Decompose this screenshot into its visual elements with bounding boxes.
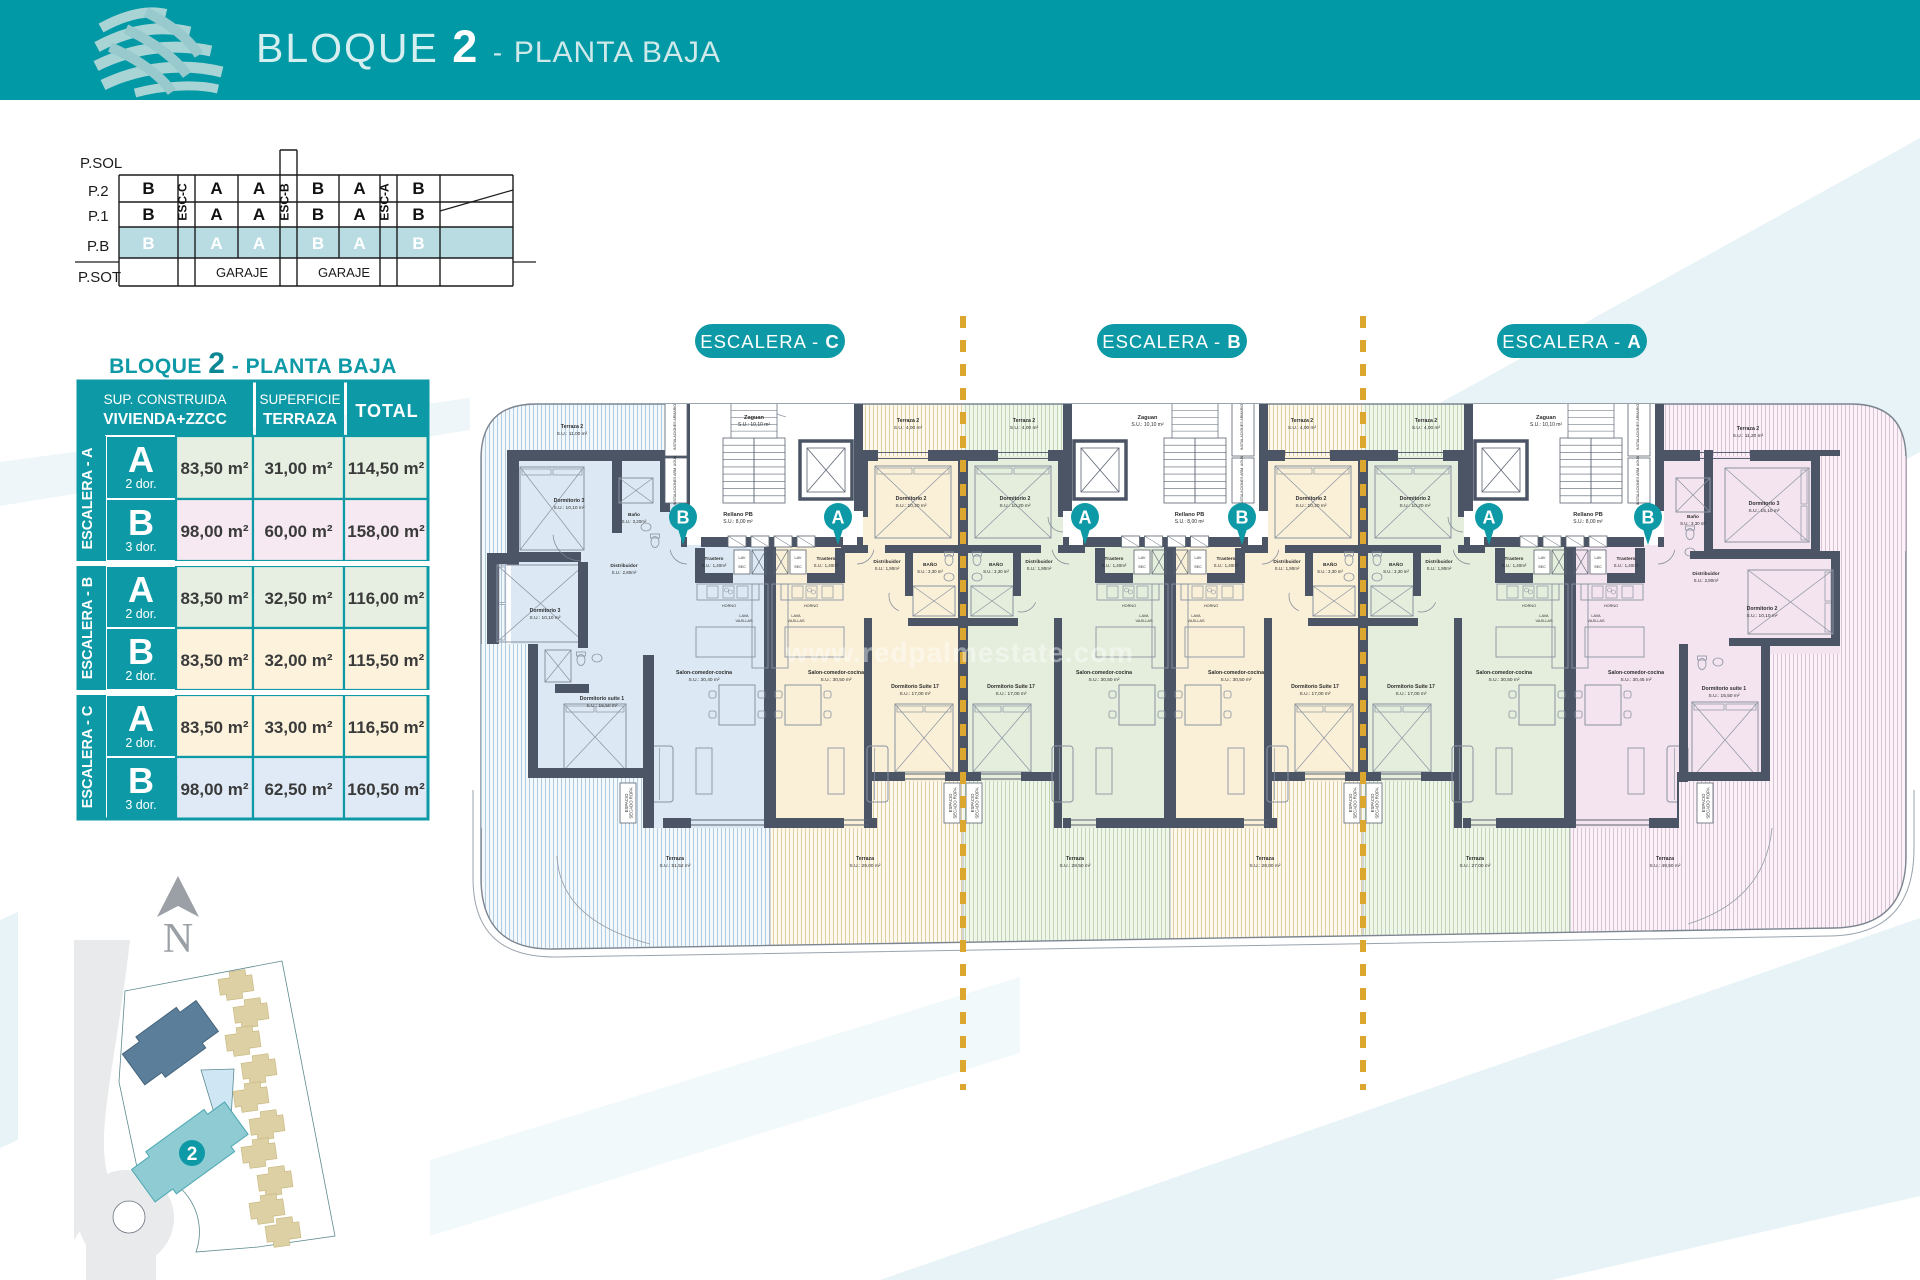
svg-text:S.U.: 3,30 m²: S.U.: 3,30 m² — [1317, 569, 1343, 574]
svg-text:ESCALERA - C: ESCALERA - C — [700, 331, 840, 352]
svg-text:A: A — [353, 179, 365, 198]
svg-text:B: B — [312, 234, 324, 253]
svg-text:LAVA: LAVA — [791, 614, 801, 618]
svg-text:SUP. CONSTRUIDA: SUP. CONSTRUIDA — [104, 392, 227, 407]
svg-text:GARAJE: GARAJE — [318, 265, 370, 280]
svg-text:S.U.: 10,10 m²: S.U.: 10,10 m² — [1747, 613, 1778, 619]
svg-text:INSTALACIONES ARM. AGUA: INSTALACIONES ARM. AGUA — [1636, 455, 1640, 505]
svg-text:Salon-comedor-cocina: Salon-comedor-cocina — [1476, 670, 1532, 676]
svg-text:S.U.: 1,90m²: S.U.: 1,90m² — [1427, 566, 1452, 571]
svg-text:Trastero: Trastero — [1617, 556, 1636, 562]
svg-text:HORNO: HORNO — [1604, 604, 1618, 608]
svg-text:Dormitorio Suite 17: Dormitorio Suite 17 — [987, 684, 1035, 690]
svg-text:S.U.: 30,40 m²: S.U.: 30,40 m² — [689, 677, 720, 683]
svg-text:Zaguan: Zaguan — [744, 415, 764, 421]
svg-text:S.U.: 2,80m²: S.U.: 2,80m² — [612, 570, 637, 575]
svg-text:Distribuidor: Distribuidor — [1025, 559, 1052, 565]
svg-text:HORNO: HORNO — [722, 604, 736, 608]
svg-text:P.SOT: P.SOT — [78, 269, 121, 286]
svg-text:Dormitorio suite 1: Dormitorio suite 1 — [1702, 686, 1747, 692]
svg-text:B: B — [142, 234, 154, 253]
svg-text:S.U.: 1,40m²: S.U.: 1,40m² — [1102, 563, 1127, 568]
svg-text:B: B — [1642, 508, 1655, 528]
svg-text:Terraza: Terraza — [1466, 856, 1484, 862]
svg-text:S.U.: 3,30 m²: S.U.: 3,30 m² — [1680, 521, 1706, 526]
svg-text:S.U.: 10,10 m²: S.U.: 10,10 m² — [554, 505, 585, 511]
svg-text:S.U.: 11,20 m²: S.U.: 11,20 m² — [1733, 433, 1764, 439]
svg-text:S.U.: 3,30 m²: S.U.: 3,30 m² — [983, 569, 1009, 574]
svg-text:Salon-comedor-cocina: Salon-comedor-cocina — [1076, 670, 1132, 676]
svg-text:A: A — [253, 179, 265, 198]
svg-text:S.U.: 29,00 m²: S.U.: 29,00 m² — [850, 863, 881, 869]
svg-text:ESC-A: ESC-A — [378, 183, 392, 221]
svg-text:SECADO ROPA: SECADO ROPA — [1353, 787, 1358, 818]
svg-text:Dormitorio 2: Dormitorio 2 — [1400, 496, 1431, 502]
svg-text:B: B — [1236, 508, 1249, 528]
svg-text:S.U.: 10,10 m²: S.U.: 10,10 m² — [738, 422, 771, 428]
svg-text:2 dor.: 2 dor. — [125, 477, 156, 491]
svg-text:Terraza: Terraza — [856, 856, 874, 862]
svg-text:S.U.: 15,50 m²: S.U.: 15,50 m² — [587, 703, 618, 709]
svg-text:S.U.: 10,10 m²: S.U.: 10,10 m² — [1530, 422, 1563, 428]
svg-text:P.1: P.1 — [88, 208, 109, 225]
svg-text:S.U.: 11,00 m²: S.U.: 11,00 m² — [557, 431, 588, 437]
svg-text:S.U.: 17,00 m²: S.U.: 17,00 m² — [900, 691, 931, 697]
svg-text:Terraza 2: Terraza 2 — [897, 418, 920, 424]
svg-text:Salon-comedor-cocina: Salon-comedor-cocina — [1608, 670, 1664, 676]
svg-text:Trastero: Trastero — [1505, 556, 1524, 562]
svg-text:S.U.: 8,00 m²: S.U.: 8,00 m² — [1573, 519, 1603, 525]
svg-text:B: B — [312, 205, 324, 224]
svg-text:BAÑO: BAÑO — [1323, 561, 1337, 568]
svg-text:S.U.: 3,20m²: S.U.: 3,20m² — [622, 519, 647, 524]
svg-text:SEC: SEC — [1538, 565, 1546, 569]
svg-text:Salon-comedor-cocina: Salon-comedor-cocina — [1208, 670, 1264, 676]
svg-text:Distribuidor: Distribuidor — [1692, 571, 1719, 577]
svg-text:33,00 m²: 33,00 m² — [264, 718, 332, 737]
svg-text:S.U.: 1,40m²: S.U.: 1,40m² — [1502, 563, 1527, 568]
svg-text:A: A — [128, 439, 154, 480]
svg-text:Dormitorio 2: Dormitorio 2 — [1296, 496, 1327, 502]
svg-text:VAJILLAS: VAJILLAS — [1587, 619, 1604, 623]
svg-text:S.U.: 30,45 m²: S.U.: 30,45 m² — [1621, 677, 1652, 683]
svg-text:A: A — [353, 234, 365, 253]
svg-text:BAÑO: BAÑO — [989, 561, 1003, 568]
svg-text:A: A — [832, 508, 845, 528]
svg-text:SEC: SEC — [1594, 565, 1602, 569]
svg-text:Terraza: Terraza — [666, 856, 684, 862]
svg-text:LAVA: LAVA — [1139, 614, 1149, 618]
svg-text:S.U.: 15,50 m²: S.U.: 15,50 m² — [1709, 693, 1740, 699]
svg-text:SEC: SEC — [738, 565, 746, 569]
svg-text:SECADO ROPA: SECADO ROPA — [629, 787, 634, 818]
svg-text:S.U.: 8,00 m²: S.U.: 8,00 m² — [1175, 519, 1205, 525]
svg-text:VAJILLAS: VAJILLAS — [735, 619, 752, 623]
svg-text:Distribuidor: Distribuidor — [873, 559, 900, 565]
svg-text:BAÑO: BAÑO — [1389, 561, 1403, 568]
svg-text:SEC: SEC — [1194, 565, 1202, 569]
svg-text:A: A — [128, 569, 154, 610]
svg-text:VAJILLAS: VAJILLAS — [1135, 619, 1152, 623]
svg-text:S.U.: 10,20 m²: S.U.: 10,20 m² — [1000, 503, 1031, 509]
svg-text:LAV: LAV — [1595, 556, 1602, 560]
svg-text:B: B — [128, 760, 154, 801]
svg-text:S.U.: 10,20 m²: S.U.: 10,20 m² — [1400, 503, 1431, 509]
svg-text:S.U.: 10,20 m²: S.U.: 10,20 m² — [1296, 503, 1327, 509]
svg-text:LAV: LAV — [795, 556, 802, 560]
svg-text:Dormitorio 2: Dormitorio 2 — [1747, 606, 1778, 612]
svg-text:114,50 m²: 114,50 m² — [348, 459, 425, 478]
svg-text:Terraza 2: Terraza 2 — [1013, 418, 1036, 424]
svg-text:2 dor.: 2 dor. — [125, 607, 156, 621]
svg-text:B: B — [412, 205, 424, 224]
svg-text:VAJILLAS: VAJILLAS — [1187, 619, 1204, 623]
svg-text:116,50 m²: 116,50 m² — [348, 718, 425, 737]
svg-text:VIVIENDA+ZZCC: VIVIENDA+ZZCC — [103, 411, 227, 428]
svg-text:HORNO: HORNO — [804, 604, 818, 608]
svg-text:S.U.: 28,00 m²: S.U.: 28,00 m² — [1250, 863, 1281, 869]
svg-text:ESCALERA - C: ESCALERA - C — [80, 705, 96, 808]
svg-text:S.U.: 1,90m²: S.U.: 1,90m² — [875, 566, 900, 571]
svg-text:S.U.: 15,10 m²: S.U.: 15,10 m² — [1749, 508, 1780, 514]
svg-text:ESCALERA - B: ESCALERA - B — [80, 577, 96, 680]
svg-text:Dormitorio Suite 17: Dormitorio Suite 17 — [891, 684, 939, 690]
svg-text:P.SOL: P.SOL — [80, 155, 122, 172]
svg-text:INSTALACIONES ARM. AGUA: INSTALACIONES ARM. AGUA — [1240, 455, 1244, 505]
svg-text:S.U.: 17,00 m²: S.U.: 17,00 m² — [996, 691, 1027, 697]
svg-text:S.U.: 8,00 m²: S.U.: 8,00 m² — [723, 519, 753, 525]
svg-text:S.U.: 10,10 m²: S.U.: 10,10 m² — [1131, 422, 1164, 428]
svg-text:B: B — [677, 508, 690, 528]
svg-text:Dormitorio Suite 17: Dormitorio Suite 17 — [1291, 684, 1339, 690]
svg-text:HORNO: HORNO — [1122, 604, 1136, 608]
svg-text:60,00 m²: 60,00 m² — [264, 522, 332, 541]
svg-text:3 dor.: 3 dor. — [125, 798, 156, 812]
svg-text:SECADO ROPA: SECADO ROPA — [1375, 787, 1380, 818]
svg-text:2 dor.: 2 dor. — [125, 736, 156, 750]
svg-text:Dormitorio 3: Dormitorio 3 — [554, 498, 585, 504]
svg-text:Terraza 2: Terraza 2 — [561, 424, 584, 430]
svg-text:Trastero: Trastero — [1105, 556, 1124, 562]
svg-text:Trastero: Trastero — [705, 556, 724, 562]
svg-text:98,00 m²: 98,00 m² — [180, 780, 248, 799]
svg-text:32,00 m²: 32,00 m² — [264, 651, 332, 670]
svg-text:Terraza 2: Terraza 2 — [1737, 426, 1760, 432]
svg-text:S.U.: 3,30 m²: S.U.: 3,30 m² — [917, 569, 943, 574]
svg-text:83,50 m²: 83,50 m² — [180, 651, 248, 670]
svg-text:31,00 m²: 31,00 m² — [264, 459, 332, 478]
svg-text:158,00 m²: 158,00 m² — [347, 522, 425, 541]
svg-text:B: B — [412, 179, 424, 198]
svg-text:LAVA: LAVA — [1539, 614, 1549, 618]
svg-text:S.U.: 51,52 m²: S.U.: 51,52 m² — [660, 863, 691, 869]
svg-text:VAJILLAS: VAJILLAS — [1535, 619, 1552, 623]
svg-text:A: A — [253, 234, 265, 253]
svg-text:S.U.: 17,00 m²: S.U.: 17,00 m² — [1396, 691, 1427, 697]
svg-text:S.U.: 4,00 m²: S.U.: 4,00 m² — [894, 425, 923, 431]
svg-text:Terraza 2: Terraza 2 — [1415, 418, 1438, 424]
svg-text:98,00 m²: 98,00 m² — [180, 522, 248, 541]
svg-text:VAJILLAS: VAJILLAS — [787, 619, 804, 623]
svg-text:S.U.: 10,20 m²: S.U.: 10,20 m² — [896, 503, 927, 509]
svg-text:B: B — [312, 179, 324, 198]
svg-text:116,00 m²: 116,00 m² — [348, 589, 425, 608]
svg-text:Dormitorio 2: Dormitorio 2 — [1000, 496, 1031, 502]
svg-text:Distribuidor: Distribuidor — [610, 563, 637, 569]
svg-text:Salon-comedor-cocina: Salon-comedor-cocina — [676, 670, 732, 676]
svg-text:Zaguan: Zaguan — [1536, 415, 1556, 421]
svg-text:115,50 m²: 115,50 m² — [348, 651, 425, 670]
svg-text:SEC: SEC — [1138, 565, 1146, 569]
svg-text:S.U.: 1,40m²: S.U.: 1,40m² — [1214, 563, 1239, 568]
svg-text:62,50 m²: 62,50 m² — [264, 780, 332, 799]
svg-text:Rellano PB: Rellano PB — [723, 512, 753, 518]
svg-text:HORNO: HORNO — [1204, 604, 1218, 608]
svg-text:Baño: Baño — [628, 512, 640, 518]
svg-text:TOTAL: TOTAL — [355, 401, 418, 421]
svg-text:ESCALERA - A: ESCALERA - A — [80, 447, 96, 550]
svg-text:Terraza: Terraza — [1256, 856, 1274, 862]
svg-text:83,50 m²: 83,50 m² — [180, 459, 248, 478]
svg-text:S.U.: 2,80m²: S.U.: 2,80m² — [1694, 578, 1719, 583]
svg-text:SECADO ROPA: SECADO ROPA — [1706, 787, 1711, 818]
svg-text:Rellano PB: Rellano PB — [1175, 512, 1205, 518]
svg-text:S.U.: 30,50 m²: S.U.: 30,50 m² — [821, 677, 852, 683]
svg-text:Salon-comedor-cocina: Salon-comedor-cocina — [808, 670, 864, 676]
svg-text:www.redpalmestate.com: www.redpalmestate.com — [785, 637, 1134, 668]
svg-text:B: B — [128, 631, 154, 672]
svg-text:SUPERFICIE: SUPERFICIE — [259, 392, 340, 407]
svg-text:LAVA: LAVA — [1591, 614, 1601, 618]
svg-text:Trastero: Trastero — [817, 556, 836, 562]
svg-text:160,50 m²: 160,50 m² — [347, 780, 425, 799]
svg-text:S.U.: 30,50 m²: S.U.: 30,50 m² — [1221, 677, 1252, 683]
svg-text:ESCALERA - B: ESCALERA - B — [1102, 331, 1242, 352]
svg-text:B: B — [412, 234, 424, 253]
svg-text:S.U.: 30,50 m²: S.U.: 30,50 m² — [1489, 677, 1520, 683]
svg-text:LAV: LAV — [739, 556, 746, 560]
svg-text:A: A — [353, 205, 365, 224]
svg-text:TERRAZA: TERRAZA — [263, 411, 337, 428]
svg-text:GARAJE: GARAJE — [216, 265, 268, 280]
svg-text:83,50 m²: 83,50 m² — [180, 589, 248, 608]
svg-text:Baño: Baño — [1687, 514, 1699, 520]
svg-text:S.U.: 10,10 m²: S.U.: 10,10 m² — [530, 615, 561, 621]
svg-text:Zaguan: Zaguan — [1138, 415, 1158, 421]
svg-text:B: B — [142, 179, 154, 198]
svg-text:S.U.: 3,30 m²: S.U.: 3,30 m² — [1383, 569, 1409, 574]
svg-text:Trastero: Trastero — [1217, 556, 1236, 562]
svg-text:2: 2 — [187, 1144, 198, 1165]
svg-text:HORNO: HORNO — [1522, 604, 1536, 608]
svg-text:S.U.: 1,40m²: S.U.: 1,40m² — [814, 563, 839, 568]
svg-text:Dormitorio 3: Dormitorio 3 — [1749, 501, 1780, 507]
svg-text:S.U.: 30,50 m²: S.U.: 30,50 m² — [1089, 677, 1120, 683]
svg-text:Terraza: Terraza — [1066, 856, 1084, 862]
svg-text:S.U.: 4,00 m²: S.U.: 4,00 m² — [1412, 425, 1441, 431]
svg-text:Dormitorio suite 1: Dormitorio suite 1 — [580, 696, 625, 702]
svg-text:Dormitorio 2: Dormitorio 2 — [896, 496, 927, 502]
svg-text:A: A — [128, 698, 154, 739]
svg-text:LAV: LAV — [1195, 556, 1202, 560]
svg-text:P.2: P.2 — [88, 183, 109, 200]
svg-text:SECADO ROPA: SECADO ROPA — [975, 787, 980, 818]
svg-text:Terraza 2: Terraza 2 — [1291, 418, 1314, 424]
svg-text:Dormitorio Suite 17: Dormitorio Suite 17 — [1387, 684, 1435, 690]
svg-text:Terraza: Terraza — [1656, 856, 1674, 862]
svg-text:Distribuidor: Distribuidor — [1425, 559, 1452, 565]
svg-text:ESC-C: ESC-C — [176, 183, 190, 221]
svg-text:P.B: P.B — [87, 238, 109, 255]
svg-text:2 dor.: 2 dor. — [125, 669, 156, 683]
svg-text:SEC: SEC — [794, 565, 802, 569]
svg-text:N: N — [163, 916, 193, 962]
svg-text:ESC-B: ESC-B — [278, 183, 292, 221]
svg-text:LAV: LAV — [1139, 556, 1146, 560]
svg-text:83,50 m²: 83,50 m² — [180, 718, 248, 737]
svg-text:S.U.: 1,40m²: S.U.: 1,40m² — [702, 563, 727, 568]
svg-text:S.U.: 17,00 m²: S.U.: 17,00 m² — [1300, 691, 1331, 697]
svg-text:S.U.: 4,00 m²: S.U.: 4,00 m² — [1010, 425, 1039, 431]
svg-text:LAV: LAV — [1539, 556, 1546, 560]
svg-text:B: B — [142, 205, 154, 224]
svg-text:LAVA: LAVA — [739, 614, 749, 618]
svg-text:A: A — [253, 205, 265, 224]
svg-text:S.U.: 27,00 m²: S.U.: 27,00 m² — [1460, 863, 1491, 869]
svg-text:ESCALERA - A: ESCALERA - A — [1502, 331, 1642, 352]
svg-text:INSTALACIONES ARM. AGUA: INSTALACIONES ARM. AGUA — [673, 455, 677, 505]
svg-text:A: A — [210, 234, 222, 253]
svg-text:S.U.: 1,90m²: S.U.: 1,90m² — [1275, 566, 1300, 571]
svg-text:LAVA: LAVA — [1191, 614, 1201, 618]
svg-text:32,50 m²: 32,50 m² — [264, 589, 332, 608]
svg-text:BAÑO: BAÑO — [923, 561, 937, 568]
svg-text:S.U.: 49,50 m²: S.U.: 49,50 m² — [1650, 863, 1681, 869]
svg-text:3 dor.: 3 dor. — [125, 540, 156, 554]
svg-text:SECADO ROPA: SECADO ROPA — [953, 787, 958, 818]
svg-text:Dormitorio 3: Dormitorio 3 — [530, 608, 561, 614]
svg-text:A: A — [1079, 508, 1092, 528]
svg-text:A: A — [1483, 508, 1496, 528]
svg-text:B: B — [128, 502, 154, 543]
svg-text:A: A — [210, 179, 222, 198]
svg-text:S.U.: 28,50 m²: S.U.: 28,50 m² — [1060, 863, 1091, 869]
svg-text:A: A — [210, 205, 222, 224]
svg-text:Rellano PB: Rellano PB — [1573, 512, 1603, 518]
svg-text:S.U.: 1,40m²: S.U.: 1,40m² — [1614, 563, 1639, 568]
svg-text:S.U.: 1,90m²: S.U.: 1,90m² — [1027, 566, 1052, 571]
svg-text:S.U.: 4,00 m²: S.U.: 4,00 m² — [1288, 425, 1317, 431]
svg-text:Distribuidor: Distribuidor — [1273, 559, 1300, 565]
